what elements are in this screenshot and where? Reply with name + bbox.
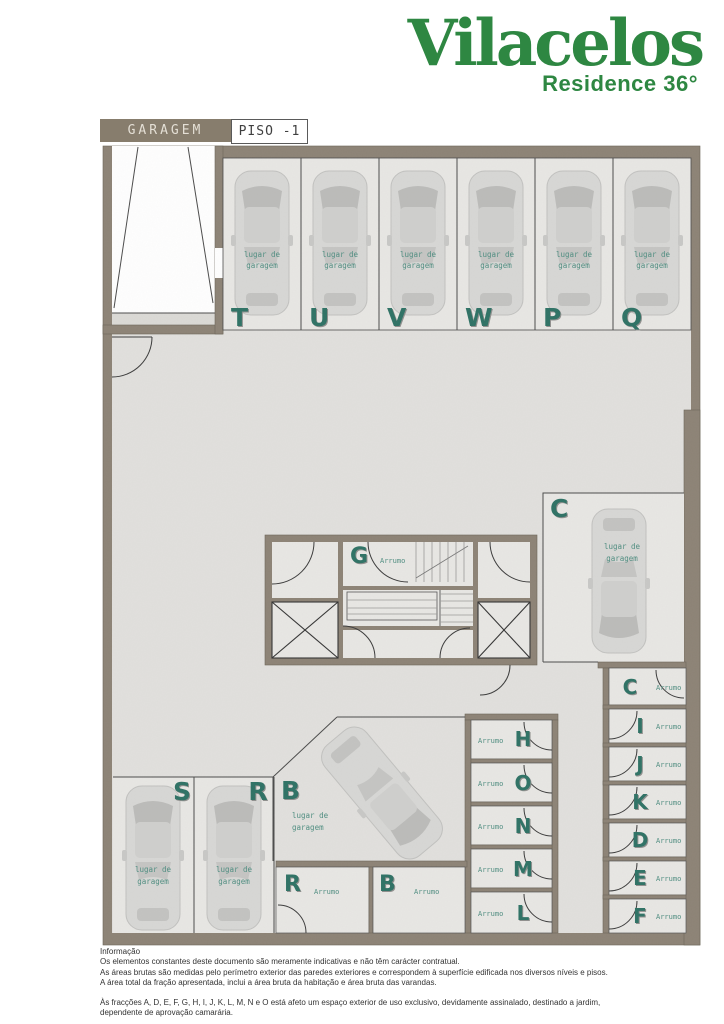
footer-title: Informação [100,947,710,957]
footer-line: As áreas brutas são medidas pelo perímet… [100,968,710,978]
footer-note-line: Às fracções A, D, E, F, G, H, I, J, K, L… [100,998,710,1008]
footer-line: Os elementos constantes deste documento … [100,957,710,967]
footer-spacer [100,989,710,998]
footer-info: Informação Os elementos constantes deste… [100,947,710,1018]
floor-plan-svg: lugar de garagem lugar de garagem lugar … [0,0,724,1024]
garage-floor-plan-page: { "header": { "brand": "Vilacelos", "sub… [0,0,724,1024]
paper-grain-texture [103,146,700,945]
footer-line: A área total da fração apresentada, incl… [100,978,710,988]
footer-note-line: dependente de aprovação camarária. [100,1008,710,1018]
